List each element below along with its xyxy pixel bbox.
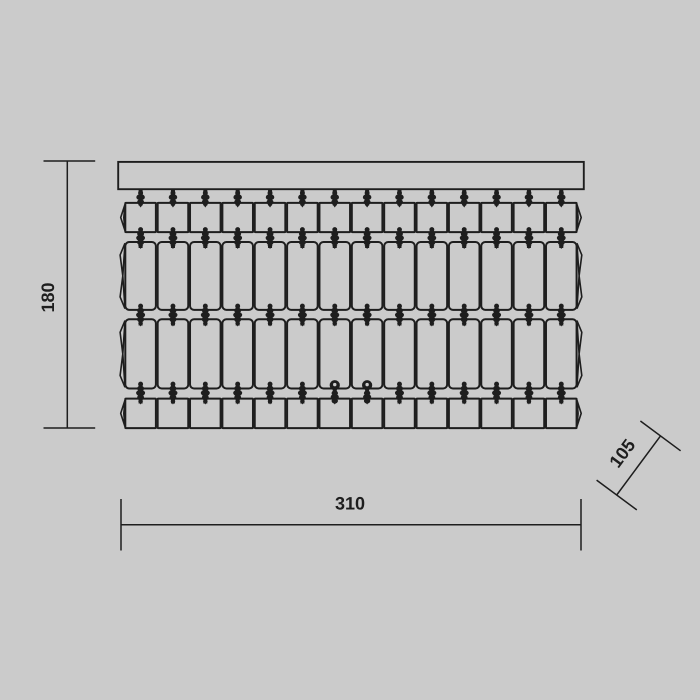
svg-text:180: 180 [38,282,58,312]
svg-text:310: 310 [335,494,365,514]
